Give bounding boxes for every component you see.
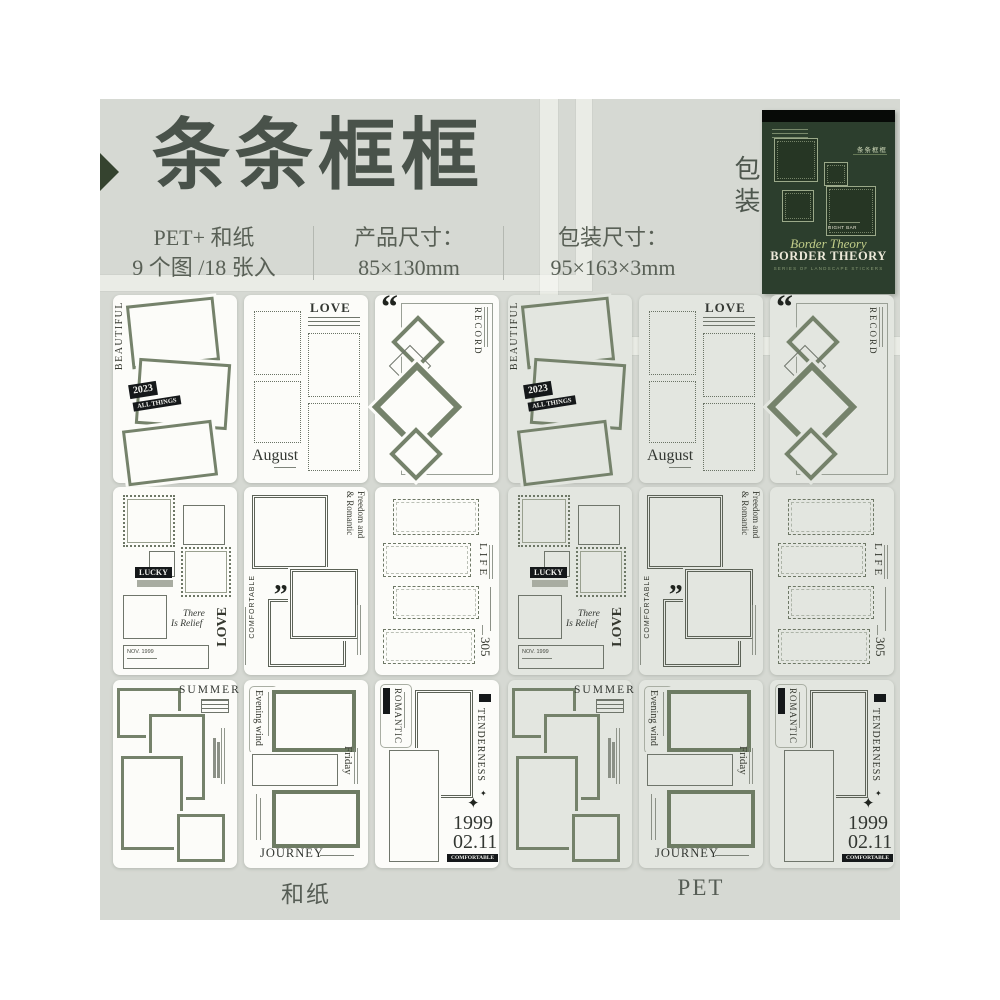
photo-frame: [667, 690, 751, 752]
tiny-text-lines: [489, 545, 493, 579]
sheet-washi-lucky: LUCKYThereIs ReliefLOVENOV. 1999: [113, 487, 237, 675]
side-line: [655, 798, 656, 840]
photo-frame: [778, 629, 870, 664]
comfortable-label: COMFORTABLE: [842, 854, 893, 862]
photo-frame: [272, 690, 356, 752]
sheet-washi-evening: Evening windFridayJOURNEY: [244, 680, 368, 868]
photo-frame: [788, 499, 874, 535]
freedom-label-line2: & Romantic: [740, 491, 750, 535]
sheet-pet-lucky: LUCKYThereIs ReliefLOVENOV. 1999: [508, 487, 632, 675]
evening-wind-label: Evening wind: [253, 690, 264, 746]
caption-box: [596, 699, 624, 713]
product-banner: 条条框框 PET+ 和纸 9 个图 /18 张入 产品尺寸： 85×130mm …: [100, 99, 900, 920]
photo-frame: [383, 629, 475, 664]
underline: [127, 658, 157, 659]
spec-product-size-label: 产品尺寸：: [318, 223, 500, 253]
photo-frame: [121, 756, 183, 850]
tiny-text-lines: [749, 748, 753, 784]
date-label: NOV. 1999: [127, 649, 154, 655]
month-label: August: [647, 447, 693, 465]
spec-material: PET+ 和纸 9 个图 /18 张入: [108, 223, 300, 282]
photo-frame: [788, 586, 874, 619]
side-line: [651, 794, 652, 840]
package-small-label: RIGHT BAR: [828, 225, 857, 230]
comfortable-label: COMFORTABLE: [644, 575, 651, 639]
photo-frame: [393, 586, 479, 619]
photo-frame: [123, 595, 167, 639]
month-label: August: [252, 447, 298, 465]
sparkle-icon: ✦: [467, 796, 480, 811]
tiny-text-lines: [308, 317, 360, 327]
number-label: 305: [477, 637, 493, 657]
friday-label: Friday: [342, 746, 354, 775]
freedom-label-line1: Freedom and: [356, 491, 366, 538]
photo-frame: [649, 311, 696, 375]
photo-frame: [784, 750, 834, 862]
accent-bar: [213, 738, 216, 778]
caption-box: [201, 699, 229, 713]
tenderness-label: TENDERNESS: [475, 708, 486, 782]
underline: [669, 467, 691, 468]
photo-frame: [290, 569, 358, 639]
tiny-text-lines: [357, 605, 361, 655]
photo-frame: [383, 543, 471, 577]
comfortable-label: COMFORTABLE: [447, 854, 498, 862]
sheet-washi-summer: SUMMER: [113, 680, 237, 868]
lucky-label: LUCKY: [135, 567, 172, 578]
side-line: [885, 587, 886, 631]
photo-frame: [703, 333, 755, 397]
photo-frame: [123, 495, 175, 547]
photo-frame: [647, 495, 723, 569]
tiny-text-line: [715, 855, 749, 856]
record-label: RECORD: [868, 307, 878, 356]
date-label: NOV. 1999: [522, 649, 549, 655]
beautiful-side-label: BEAUTIFUL: [114, 301, 125, 370]
love-label: LOVE: [705, 300, 746, 316]
group-label-pet: PET: [508, 875, 894, 901]
sparkle-icon: ✦: [875, 790, 882, 798]
beautiful-side-label: BEAUTIFUL: [509, 301, 520, 370]
photo-frame: [252, 754, 338, 786]
summer-label: SUMMER: [574, 684, 636, 696]
side-line: [245, 607, 246, 665]
photo-frame: [122, 420, 218, 487]
underline: [274, 467, 296, 468]
package-small-line: [830, 222, 860, 223]
sheet-washi-life: LIFE305: [375, 487, 499, 675]
package-cn-title: 条条框框: [857, 144, 887, 154]
journey-label: JOURNEY: [260, 846, 324, 861]
quote-icon: „: [274, 567, 288, 595]
underline: [522, 658, 552, 659]
photo-frame: [393, 499, 479, 535]
package-frame: [782, 190, 814, 222]
spec-row: PET+ 和纸 9 个图 /18 张入 产品尺寸： 85×130mm 包装尺寸：…: [100, 223, 740, 285]
side-line: [490, 587, 491, 631]
photo-frame: [778, 543, 866, 577]
photo-frame: [649, 381, 696, 443]
love-label: LOVE: [310, 300, 351, 316]
love-side-label: LOVE: [610, 607, 626, 647]
photo-frame: [389, 750, 439, 862]
photo-frame: [667, 790, 755, 848]
tiny-text-lines: [616, 728, 621, 784]
package-box: 条条框框 RIGHT BAR Border Theory BORDER THEO…: [762, 110, 895, 294]
package-frame: [824, 162, 848, 186]
sheet-washi-record: “RECORD: [375, 295, 499, 483]
number-tag: [874, 694, 886, 702]
tiny-text-lines: [354, 748, 358, 784]
sparkle-icon: ✦: [862, 796, 875, 811]
sheet-pet-freedom: Freedom and& RomanticCOMFORTABLE„: [639, 487, 763, 675]
dash-line: [482, 625, 485, 635]
side-line: [640, 607, 641, 665]
tiny-text-lines: [884, 545, 888, 579]
sheet-washi-freedom: Freedom and& RomanticCOMFORTABLE„: [244, 487, 368, 675]
number-label: 305: [872, 637, 888, 657]
romantic-label: ROMANTIC: [788, 688, 798, 744]
sheet-washi-beautiful: BEAUTIFUL2023ALL THINGS: [113, 295, 237, 483]
tiny-text-lines: [879, 307, 884, 347]
package-title: BORDER THEORY: [762, 249, 895, 264]
caption-label: [137, 580, 173, 587]
package-frame: [774, 138, 818, 182]
photo-frame: [254, 381, 301, 443]
vertical-tag: [778, 688, 785, 714]
spec-material-line1: PET+ 和纸: [108, 223, 300, 253]
photo-frame: [518, 595, 562, 639]
side-line: [256, 794, 257, 840]
accent-bar: [612, 742, 615, 778]
photo-frame: [578, 505, 620, 545]
relief-label-line2: Is Relief: [171, 619, 202, 629]
tiny-text-lines: [703, 317, 755, 327]
vertical-tag: [383, 688, 390, 714]
photo-frame: [308, 403, 360, 471]
freedom-label-line2: & Romantic: [345, 491, 355, 535]
freedom-label-line1: Freedom and: [751, 491, 761, 538]
dash-line: [877, 625, 880, 635]
divider: [503, 226, 504, 280]
photo-frame: [517, 420, 613, 487]
page-title: 条条框框: [152, 115, 484, 197]
spec-package-size-label: 包装尺寸：: [506, 223, 720, 253]
summer-label: SUMMER: [179, 684, 241, 696]
photo-frame: [685, 569, 753, 639]
side-line: [260, 798, 261, 840]
photo-frame: [254, 311, 301, 375]
photo-frame: [308, 333, 360, 397]
photo-frame: [518, 495, 570, 547]
photo-frame: [647, 754, 733, 786]
photo-frame: [576, 547, 626, 597]
tiny-text-lines: [404, 692, 407, 728]
friday-label: Friday: [737, 746, 749, 775]
photo-frame: [703, 403, 755, 471]
tiny-text-lines: [221, 728, 226, 784]
spec-material-line2: 9 个图 /18 张入: [108, 253, 300, 283]
relief-label-line2: Is Relief: [566, 619, 597, 629]
comfortable-label: COMFORTABLE: [249, 575, 256, 639]
journey-label: JOURNEY: [655, 846, 719, 861]
package-top-band: [762, 110, 895, 122]
love-side-label: LOVE: [215, 607, 231, 647]
sheet-pet-summer: SUMMER: [508, 680, 632, 868]
sheet-washi-august: LOVEAugust: [244, 295, 368, 483]
lucky-label: LUCKY: [530, 567, 567, 578]
divider: [313, 226, 314, 280]
spec-product-size-value: 85×130mm: [318, 253, 500, 283]
tiny-text-lines: [799, 692, 802, 728]
romantic-label: ROMANTIC: [393, 688, 403, 744]
tiny-text-lines: [484, 307, 489, 347]
photo-frame: [272, 790, 360, 848]
sheet-pet-life: LIFE305: [770, 487, 894, 675]
tiny-text-lines: [752, 605, 756, 655]
photo-frame: [181, 547, 231, 597]
date-label: 02.11: [453, 831, 497, 854]
package-subtitle: SERIES OF LANDSCAPE STICKERS: [762, 266, 895, 271]
photo-frame: [252, 495, 328, 569]
relief-label-line1: There: [183, 609, 205, 619]
title-arrow-icon: [100, 149, 119, 195]
package-side-label: 包装: [727, 155, 764, 219]
sheet-washi-romantic: ROMANTICTENDERNESS✦✦199902.11COMFORTABLE: [375, 680, 499, 868]
tenderness-label: TENDERNESS: [870, 708, 881, 782]
group-label-washi: 和纸: [113, 875, 499, 909]
package-cn-underline: [853, 154, 887, 155]
evening-wind-label: Evening wind: [648, 690, 659, 746]
photo-frame: [572, 814, 620, 862]
photo-frame: [183, 505, 225, 545]
spec-package-size-value: 95×163×3mm: [506, 253, 720, 283]
tiny-text-line: [320, 855, 354, 856]
sheet-pet-beautiful: BEAUTIFUL2023ALL THINGS: [508, 295, 632, 483]
number-tag: [479, 694, 491, 702]
quote-icon: “: [776, 291, 793, 325]
sheet-pet-record: “RECORD: [770, 295, 894, 483]
accent-bar: [217, 742, 220, 778]
record-label: RECORD: [473, 307, 483, 356]
life-label: LIFE: [872, 543, 884, 578]
sheet-pet-evening: Evening windFridayJOURNEY: [639, 680, 763, 868]
quote-icon: „: [669, 567, 683, 595]
caption-label: [532, 580, 568, 587]
relief-label-line1: There: [578, 609, 600, 619]
accent-bar: [608, 738, 611, 778]
sheet-pet-august: LOVEAugust: [639, 295, 763, 483]
quote-icon: “: [381, 291, 398, 325]
spec-package-size: 包装尺寸： 95×163×3mm: [506, 223, 720, 282]
date-label: 02.11: [848, 831, 892, 854]
sparkle-icon: ✦: [480, 790, 487, 798]
spec-product-size: 产品尺寸： 85×130mm: [318, 223, 500, 282]
photo-frame: [516, 756, 578, 850]
sheet-pet-romantic: ROMANTICTENDERNESS✦✦199902.11COMFORTABLE: [770, 680, 894, 868]
photo-frame: [177, 814, 225, 862]
life-label: LIFE: [477, 543, 489, 578]
